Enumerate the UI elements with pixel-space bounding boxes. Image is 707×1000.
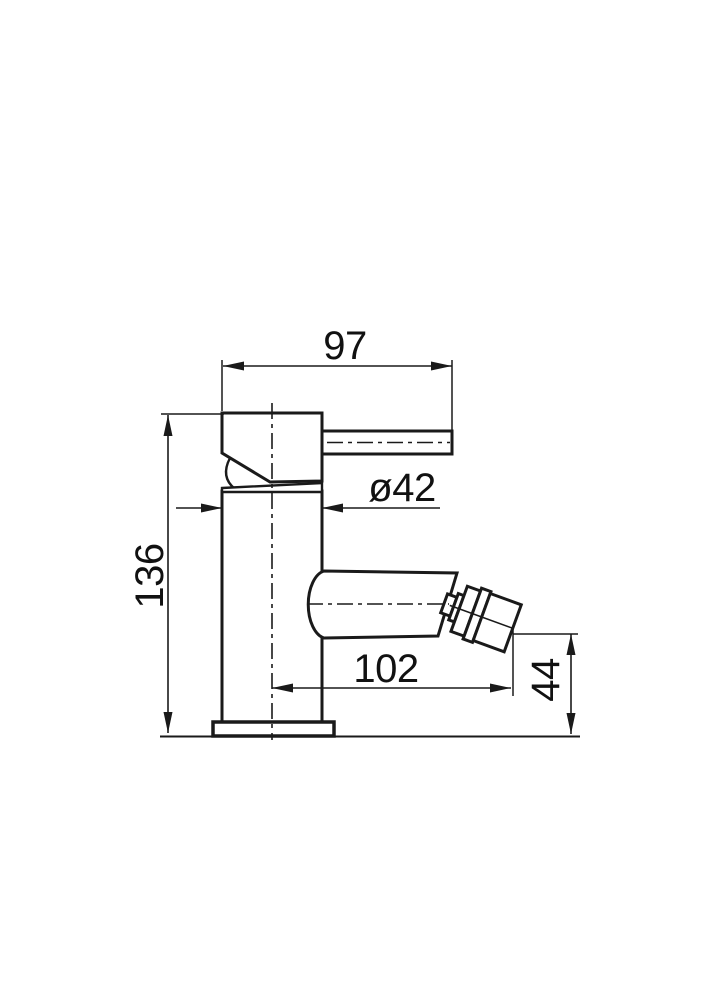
drawing-canvas: 97 ø42 136 102 (0, 0, 707, 1000)
arrowhead-down-icon (567, 713, 576, 734)
dimension-total-height: 136 (128, 414, 224, 733)
dimension-outlet-height: 44 (513, 634, 578, 734)
dim-label-102: 102 (353, 647, 418, 691)
arrowhead-right-icon (431, 362, 452, 371)
arrowhead-up-icon (567, 634, 576, 655)
arrowhead-up-icon (164, 415, 173, 436)
arrowhead-down-icon (164, 712, 173, 733)
dim-label-diameter-42: ø42 (368, 466, 435, 510)
arrowhead-left-icon (223, 362, 244, 371)
faucet-technical-drawing: 97 ø42 136 102 (0, 0, 707, 1000)
base-plate (213, 722, 334, 736)
arrowhead-right-icon (490, 684, 511, 693)
arrowhead-right-icon (201, 504, 222, 513)
dim-label-136: 136 (128, 543, 172, 608)
head-dome-arc (226, 458, 235, 489)
dim-label-44: 44 (524, 658, 568, 702)
dim-label-97: 97 (323, 324, 367, 368)
arrowhead-left-icon (322, 504, 343, 513)
